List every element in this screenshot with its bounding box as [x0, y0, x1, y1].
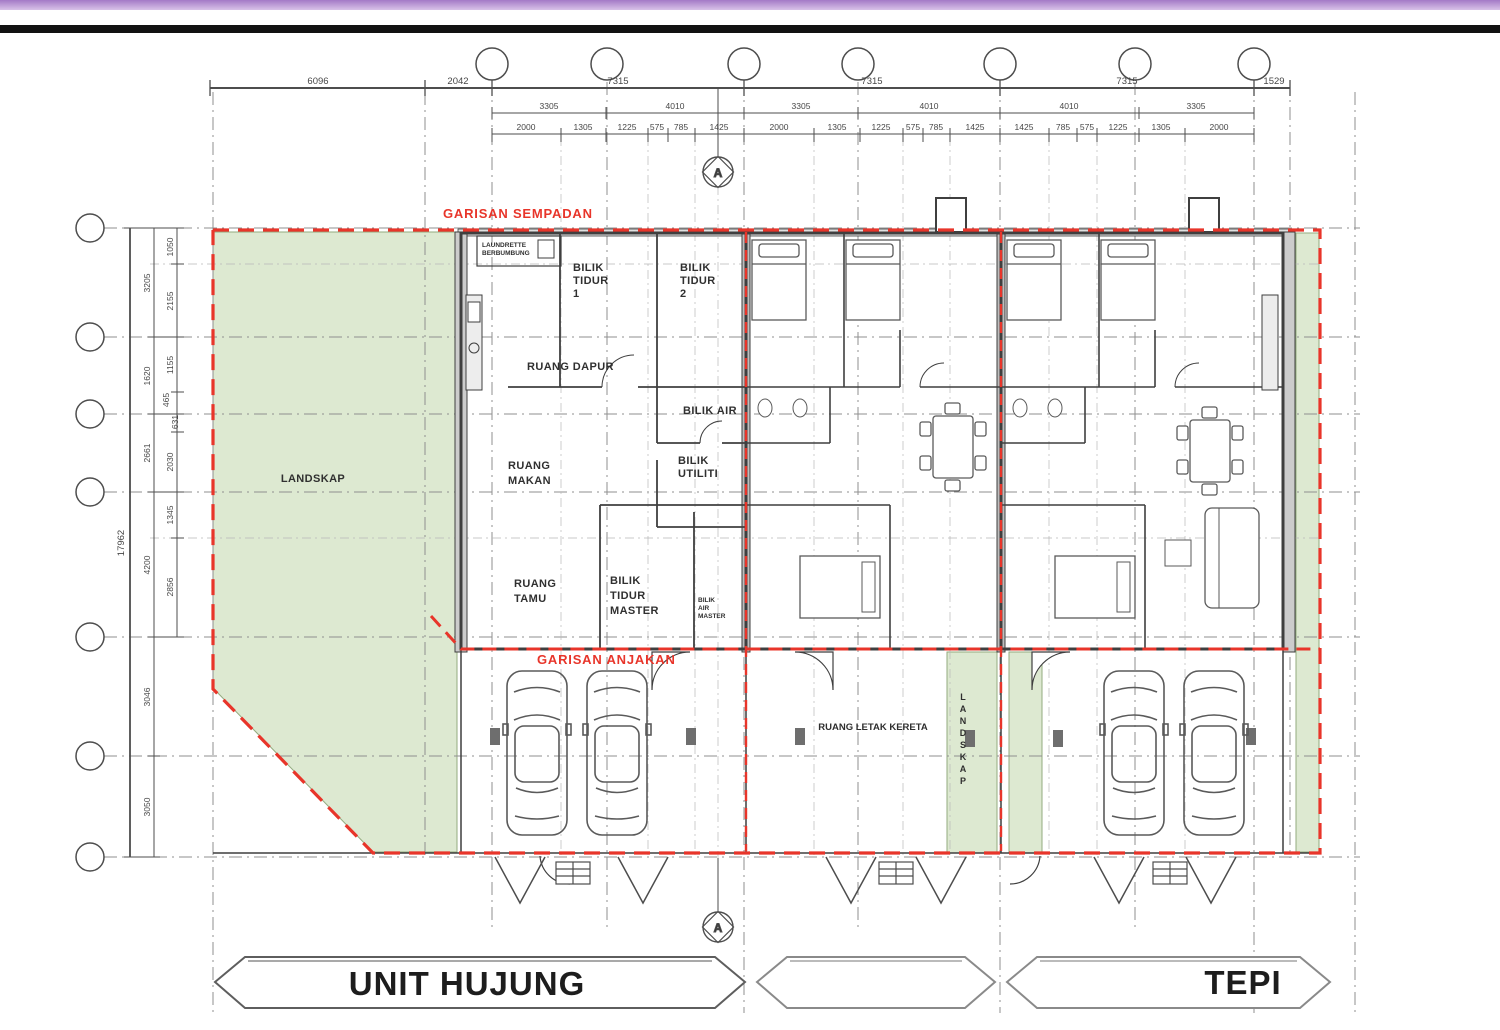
- dim-text: 1050: [165, 237, 175, 256]
- utility-label: BILIK: [678, 455, 709, 467]
- utility-label: UTILITI: [678, 468, 718, 480]
- dim-text: 1305: [1152, 122, 1171, 132]
- unit2-furniture: [752, 240, 986, 618]
- banner-side-label: TEPI: [1204, 964, 1281, 1001]
- dim-text: 2000: [1210, 122, 1229, 132]
- driveway-marks: [495, 857, 1236, 903]
- dim-text: 1425: [710, 122, 729, 132]
- cars: [503, 671, 1248, 835]
- landscape-areas: [213, 232, 1319, 853]
- porch-protrusion: [1189, 198, 1219, 232]
- dim-text: 7315: [607, 76, 628, 87]
- dim-text: 1305: [574, 122, 593, 132]
- dining-label: MAKAN: [508, 475, 551, 487]
- landscape-left-area: [213, 232, 457, 852]
- dim-text: 1225: [618, 122, 637, 132]
- dim-text: 1305: [828, 122, 847, 132]
- dim-text: 1225: [872, 122, 891, 132]
- setback-label: GARISAN ANJAKAN: [537, 652, 676, 667]
- dim-text: 1620: [142, 366, 152, 385]
- carport-label: RUANG LETAK KERETA: [818, 722, 928, 733]
- dim-text: 1225: [1109, 122, 1128, 132]
- banner-middle: [757, 957, 995, 1008]
- porch-protrusion: [936, 198, 966, 232]
- dim-text: 3046: [142, 687, 152, 706]
- landscape-strip-mid-left: [947, 652, 997, 853]
- dim-text: 785: [674, 122, 688, 132]
- dim-text: 7315: [1116, 76, 1137, 87]
- dim-text: 575: [906, 122, 920, 132]
- landscape-strip-right: [1296, 233, 1319, 852]
- landscape-label: LANDSKAP: [281, 473, 345, 485]
- dim-text: 1425: [1015, 122, 1034, 132]
- dim-text: 3305: [792, 101, 811, 111]
- master-bedroom-label: TIDUR: [610, 590, 646, 602]
- dim-text: 6096: [307, 76, 328, 87]
- dim-text: 465: [161, 393, 171, 407]
- dim-text: 4010: [666, 101, 685, 111]
- banner-end-unit-label: UNIT HUJUNG: [349, 965, 586, 1002]
- bedroom2-label: 2: [680, 288, 687, 300]
- unit3-furniture: [1007, 240, 1259, 618]
- master-bath-label: AIR: [698, 605, 710, 612]
- dim-text: 2856: [165, 577, 175, 596]
- section-marker-bottom: A: [702, 858, 733, 943]
- landscape-strip-mid-right: [1009, 652, 1042, 853]
- top-accent-bar: [0, 0, 1500, 10]
- dim-text: 1425: [966, 122, 985, 132]
- kitchen-label: RUANG DAPUR: [527, 361, 614, 373]
- dim-text: 4010: [920, 101, 939, 111]
- dim-text: 1155: [165, 356, 175, 375]
- laundrette-label: BERBUMBUNG: [482, 250, 530, 257]
- living-label: RUANG: [514, 578, 556, 590]
- master-bath-label: BILIK: [698, 597, 715, 604]
- dim-text: 785: [929, 122, 943, 132]
- dim-text: 2155: [165, 291, 175, 310]
- master-bath-label: MASTER: [698, 613, 726, 620]
- dim-text: 3305: [540, 101, 559, 111]
- unit1-outline: [461, 233, 746, 649]
- bedroom2-label: TIDUR: [680, 275, 716, 287]
- dim-text: 575: [1080, 122, 1094, 132]
- floor-plan-page: 6096 2042 7315 7315 7315 1529 3305 4010 …: [0, 0, 1500, 1030]
- bedroom1-label: 1: [573, 288, 580, 300]
- bathroom-label: BILIK AIR: [683, 405, 737, 417]
- living-label: TAMU: [514, 593, 547, 605]
- dim-text: 2661: [142, 443, 152, 462]
- boundary-label: GARISAN SEMPADAN: [443, 206, 593, 221]
- top-rule: [0, 25, 1500, 33]
- bedroom1-label: BILIK: [573, 262, 604, 274]
- dim-text: 3050: [142, 797, 152, 816]
- left-dimension-lines: [124, 228, 184, 857]
- dim-text: 3205: [142, 273, 152, 292]
- bedroom2-label: BILIK: [680, 262, 711, 274]
- floor-plan-drawing: 6096 2042 7315 7315 7315 1529 3305 4010 …: [0, 0, 1500, 1030]
- dim-text: 7315: [861, 76, 882, 87]
- dim-text: 575: [650, 122, 664, 132]
- left-dimension-texts: 17962 3205 1620 2661 4200 3046 3050 1050…: [116, 237, 180, 816]
- master-bedroom-label: BILIK: [610, 575, 641, 587]
- dim-text: 4010: [1060, 101, 1079, 111]
- laundrette-label: LAUNDRETTE: [482, 242, 527, 249]
- bedroom1-label: TIDUR: [573, 275, 609, 287]
- dim-text: 1345: [165, 505, 175, 524]
- dim-text: 631: [170, 415, 180, 429]
- master-bedroom-label: MASTER: [610, 605, 659, 617]
- dining-label: RUANG: [508, 460, 550, 472]
- landscape-vertical-label: LANDSKAP: [958, 692, 968, 804]
- dim-text: 1529: [1263, 76, 1284, 87]
- setback-line-anjakan: [431, 616, 1320, 649]
- section-marker-letter: A: [714, 166, 723, 180]
- dim-text: 17962: [116, 530, 127, 556]
- grid-bubbles-left: [76, 214, 104, 871]
- dim-text: 2030: [165, 452, 175, 471]
- dim-text: 4200: [142, 555, 152, 574]
- section-marker-top: A: [702, 88, 733, 188]
- unit1-room-labels: LAUNDRETTE BERBUMBUNG BILIK TIDUR 1 BILI…: [482, 242, 737, 620]
- section-marker-letter: A: [714, 921, 723, 935]
- dim-text: 3305: [1187, 101, 1206, 111]
- dim-text: 2042: [447, 76, 468, 87]
- dim-text: 2000: [517, 122, 536, 132]
- dim-text: 2000: [770, 122, 789, 132]
- dim-text: 785: [1056, 122, 1070, 132]
- top-dimension-lines: [210, 80, 1290, 142]
- top-dimension-texts: 6096 2042 7315 7315 7315 1529 3305 4010 …: [307, 76, 1284, 132]
